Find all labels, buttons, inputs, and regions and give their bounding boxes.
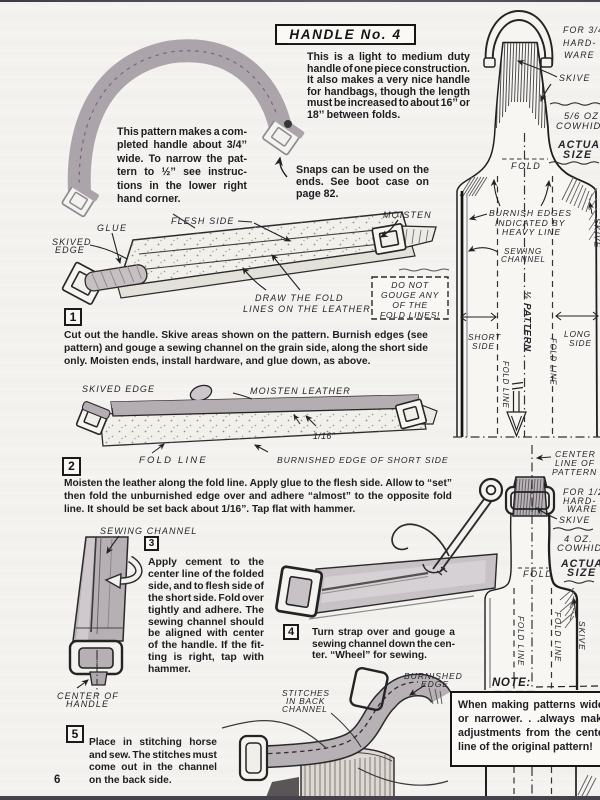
svg-text:FOLD LINE: FOLD LINE <box>516 616 525 666</box>
svg-text:HEAVY LINE: HEAVY LINE <box>502 227 561 237</box>
svg-text:SIDE: SIDE <box>569 338 592 348</box>
svg-text:1/16″: 1/16″ <box>313 431 336 441</box>
svg-text:SKIVE: SKIVE <box>559 73 590 83</box>
svg-text:COWHIDE: COWHIDE <box>557 543 600 553</box>
svg-text:SKIVED EDGE: SKIVED EDGE <box>82 384 155 394</box>
svg-text:SEWING CHANNEL: SEWING CHANNEL <box>100 526 197 536</box>
svg-text:FOLD LINES!: FOLD LINES! <box>380 310 440 320</box>
svg-text:SKIVE: SKIVE <box>593 218 600 248</box>
svg-text:MOISTEN: MOISTEN <box>383 210 432 220</box>
svg-text:FOLD LINE: FOLD LINE <box>549 338 558 386</box>
svg-text:WARE: WARE <box>564 50 595 60</box>
svg-text:DO NOT: DO NOT <box>391 280 429 290</box>
svg-text:DRAW THE FOLD: DRAW THE FOLD <box>255 293 344 303</box>
svg-text:LINES ON THE LEATHER: LINES ON THE LEATHER <box>243 304 371 314</box>
svg-text:GLUE: GLUE <box>97 223 128 233</box>
svg-text:½ PATTERN: ½ PATTERN <box>522 291 533 352</box>
svg-text:HARD-: HARD- <box>563 38 596 48</box>
svg-text:FOLD LINE: FOLD LINE <box>501 361 510 409</box>
svg-text:OF THE: OF THE <box>392 300 428 310</box>
svg-text:SKIVE: SKIVE <box>559 515 590 525</box>
svg-text:SIZE: SIZE <box>567 567 597 579</box>
svg-text:FOLD LINE: FOLD LINE <box>553 612 562 662</box>
svg-text:MOISTEN LEATHER: MOISTEN LEATHER <box>250 386 351 396</box>
svg-text:FOLD: FOLD <box>523 569 553 579</box>
svg-text:WARE: WARE <box>567 504 598 514</box>
svg-text:SIZE: SIZE <box>563 149 593 161</box>
svg-text:5/6 OZ: 5/6 OZ <box>564 111 599 121</box>
svg-text:FOLD: FOLD <box>511 161 541 171</box>
svg-text:PATTERN: PATTERN <box>552 467 597 477</box>
svg-text:HANDLE: HANDLE <box>66 699 109 709</box>
svg-text:FLESH SIDE: FLESH SIDE <box>171 216 235 226</box>
svg-text:SIDE: SIDE <box>472 341 495 351</box>
svg-text:COWHIDE: COWHIDE <box>556 121 600 131</box>
svg-text:FOLD LINE: FOLD LINE <box>139 455 208 466</box>
svg-text:SKIVE: SKIVE <box>577 621 587 651</box>
svg-text:BURNISH EDGES: BURNISH EDGES <box>489 208 572 218</box>
svg-text:GOUGE ANY: GOUGE ANY <box>381 290 440 300</box>
svg-text:EDGE: EDGE <box>55 245 85 255</box>
svg-text:CHANNEL: CHANNEL <box>501 255 546 264</box>
svg-text:CHANNEL: CHANNEL <box>282 704 328 714</box>
svg-text:EDGE: EDGE <box>421 679 449 689</box>
svg-text:FOR 3/4: FOR 3/4 <box>563 25 600 35</box>
svg-text:BURNISHED EDGE OF SHORT SIDE: BURNISHED EDGE OF SHORT SIDE <box>277 455 448 465</box>
